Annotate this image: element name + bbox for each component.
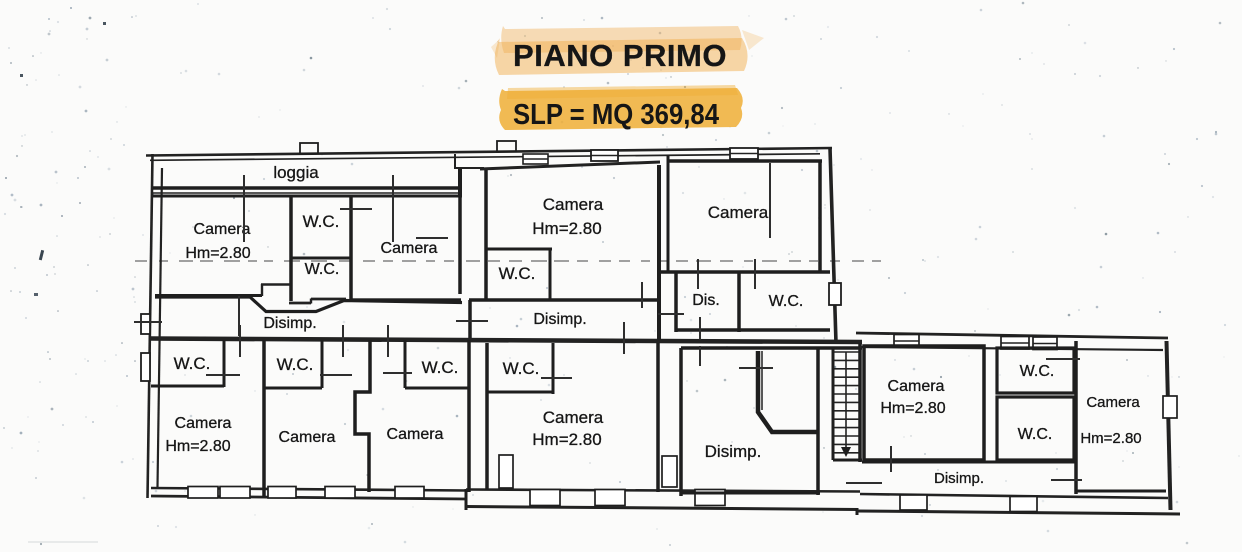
svg-text:Camera: Camera <box>888 378 945 395</box>
svg-text:W.C.: W.C. <box>503 359 540 378</box>
svg-text:Hm=2.80: Hm=2.80 <box>165 438 230 455</box>
svg-text:Camera: Camera <box>1086 394 1140 411</box>
svg-text:SLP = MQ 369,84: SLP = MQ 369,84 <box>513 99 719 131</box>
svg-text:Camera: Camera <box>175 415 232 432</box>
svg-text:Camera: Camera <box>708 203 769 222</box>
svg-text:Hm=2.80: Hm=2.80 <box>185 245 250 262</box>
svg-text:Camera: Camera <box>543 195 604 214</box>
svg-text:Disimp.: Disimp. <box>533 311 586 328</box>
svg-text:Disimp.: Disimp. <box>934 470 984 487</box>
svg-text:W.C.: W.C. <box>769 293 804 310</box>
svg-text:Dis.: Dis. <box>692 292 720 309</box>
svg-text:loggia: loggia <box>273 163 319 182</box>
svg-text:Hm=2.80: Hm=2.80 <box>532 219 601 238</box>
svg-text:Camera: Camera <box>543 408 604 427</box>
svg-text:W.C.: W.C. <box>303 212 340 231</box>
svg-text:Disimp.: Disimp. <box>263 315 316 332</box>
svg-text:W.C.: W.C. <box>1020 363 1055 380</box>
svg-text:PIANO PRIMO: PIANO PRIMO <box>513 38 727 73</box>
svg-text:Disimp.: Disimp. <box>705 442 762 461</box>
svg-text:Camera: Camera <box>387 426 444 443</box>
svg-text:W.C.: W.C. <box>174 354 211 373</box>
svg-text:Hm=2.80: Hm=2.80 <box>532 430 601 449</box>
svg-text:W.C.: W.C. <box>305 261 340 278</box>
svg-text:Camera: Camera <box>381 240 438 257</box>
svg-text:Camera: Camera <box>279 429 336 446</box>
svg-text:Hm=2.80: Hm=2.80 <box>1080 430 1141 447</box>
svg-text:W.C.: W.C. <box>1018 426 1053 443</box>
svg-text:W.C.: W.C. <box>277 355 314 374</box>
svg-text:W.C.: W.C. <box>499 264 536 283</box>
svg-text:Hm=2.80: Hm=2.80 <box>880 400 945 417</box>
svg-text:W.C.: W.C. <box>422 358 459 377</box>
svg-text:Camera: Camera <box>194 221 251 238</box>
